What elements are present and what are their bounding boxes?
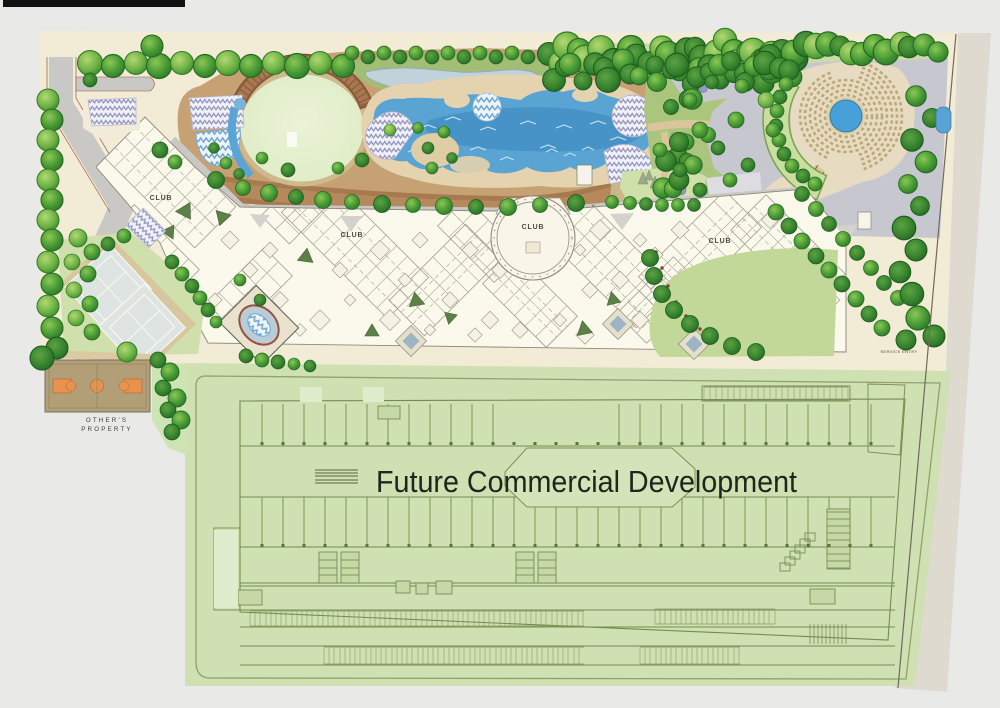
svg-text:OTHER'S: OTHER'S <box>86 417 128 424</box>
svg-text:CLUB: CLUB <box>150 195 173 202</box>
svg-text:CLUB: CLUB <box>522 224 545 231</box>
svg-text:Future Commercial Development: Future Commercial Development <box>376 464 797 499</box>
svg-text:SERVICE ENTRY: SERVICE ENTRY <box>880 349 917 354</box>
svg-text:CLUB: CLUB <box>709 238 732 245</box>
svg-text:PROPERTY: PROPERTY <box>81 426 133 433</box>
svg-text:CLUB: CLUB <box>341 232 364 239</box>
